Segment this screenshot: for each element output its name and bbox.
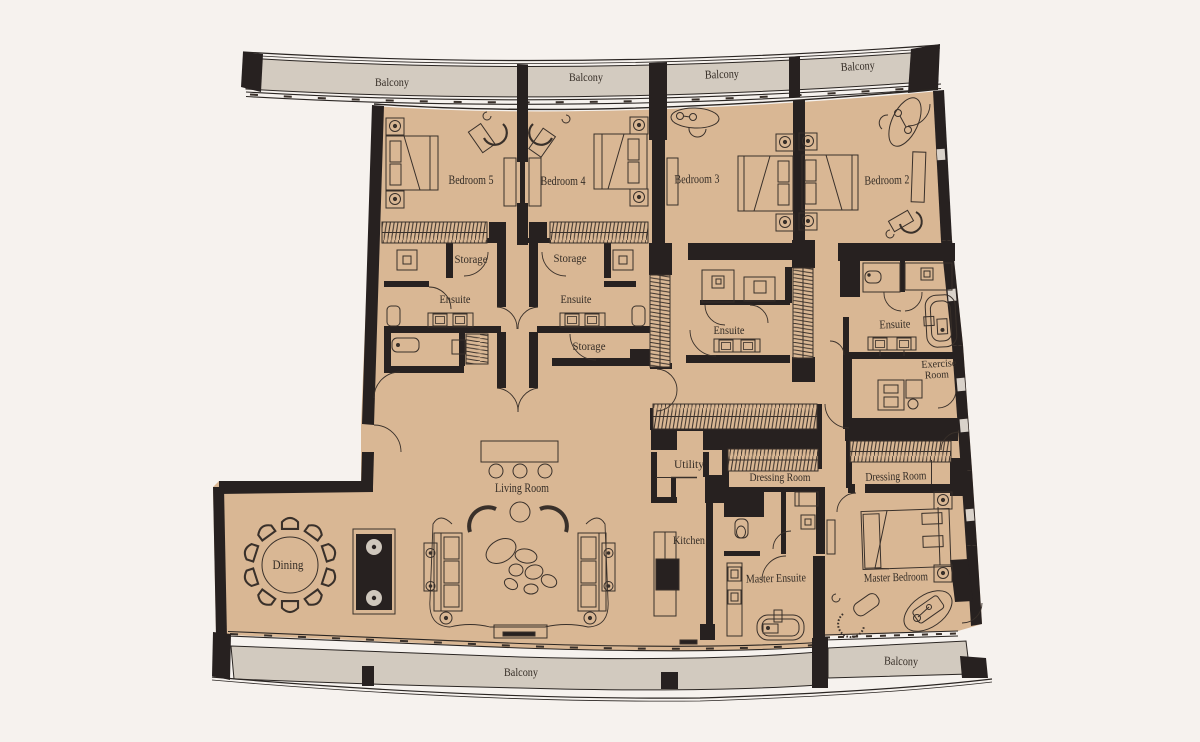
svg-text:Balcony: Balcony bbox=[504, 665, 538, 679]
svg-text:Dining: Dining bbox=[273, 558, 305, 572]
svg-text:Ensuite: Ensuite bbox=[440, 292, 471, 306]
svg-text:Ensuite: Ensuite bbox=[714, 323, 745, 337]
svg-text:Bedroom 2: Bedroom 2 bbox=[864, 172, 909, 187]
svg-text:Ensuite: Ensuite bbox=[561, 292, 592, 306]
svg-text:Balcony: Balcony bbox=[569, 70, 603, 84]
svg-text:Storage: Storage bbox=[573, 339, 606, 353]
svg-text:Storage: Storage bbox=[455, 252, 488, 266]
svg-text:Room: Room bbox=[925, 369, 950, 381]
svg-text:Bedroom 3: Bedroom 3 bbox=[674, 172, 719, 187]
svg-text:Storage: Storage bbox=[554, 251, 587, 265]
svg-text:Living Room: Living Room bbox=[495, 481, 549, 495]
svg-text:Dressing Room: Dressing Room bbox=[865, 468, 927, 484]
svg-text:Master Bedroom: Master Bedroom bbox=[864, 569, 929, 585]
svg-text:Bedroom 5: Bedroom 5 bbox=[449, 173, 494, 187]
svg-text:Balcony: Balcony bbox=[375, 75, 409, 89]
svg-text:Master Ensuite: Master Ensuite bbox=[746, 570, 806, 586]
svg-text:Balcony: Balcony bbox=[705, 66, 739, 81]
svg-text:Dressing Room: Dressing Room bbox=[750, 470, 812, 484]
svg-text:Ensuite: Ensuite bbox=[879, 316, 910, 331]
svg-text:Balcony: Balcony bbox=[884, 654, 918, 669]
svg-text:Balcony: Balcony bbox=[840, 58, 875, 74]
svg-text:Utility: Utility bbox=[674, 457, 704, 471]
svg-text:Bedroom 4: Bedroom 4 bbox=[541, 174, 587, 188]
svg-text:Kitchen: Kitchen bbox=[673, 533, 705, 547]
